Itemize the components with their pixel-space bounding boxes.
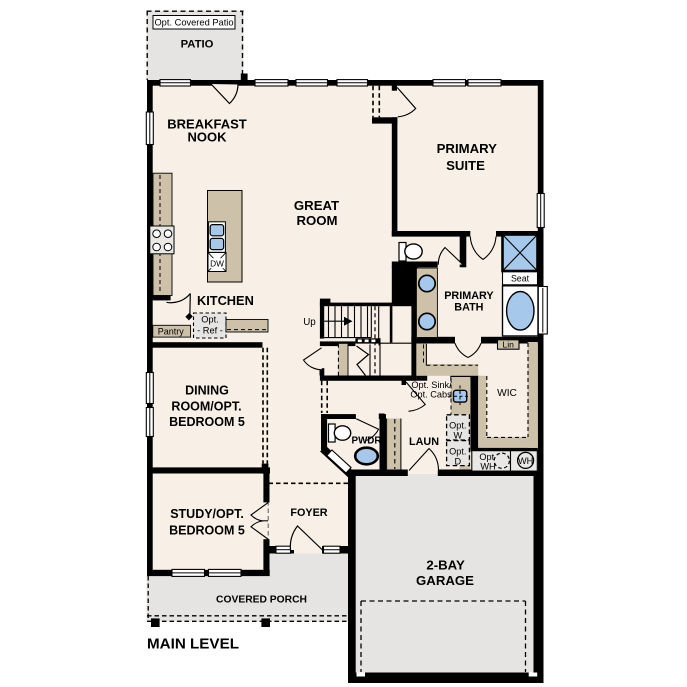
svg-text:Up: Up [303,317,316,328]
svg-text:GREAT: GREAT [294,198,339,213]
svg-text:Seat: Seat [511,274,530,284]
svg-text:Opt.: Opt. [201,315,219,325]
svg-text:STUDY/OPT.: STUDY/OPT. [170,507,244,521]
svg-text:D: D [454,456,461,466]
svg-text:Opt.: Opt. [449,446,466,456]
svg-text:ROOM: ROOM [296,213,337,228]
svg-text:2-BAY: 2-BAY [426,557,465,572]
svg-text:MAIN LEVEL: MAIN LEVEL [147,636,239,653]
svg-text:PATIO: PATIO [181,38,214,50]
svg-text:LAUN: LAUN [409,436,439,448]
svg-text:Opt.: Opt. [449,421,466,431]
svg-text:WH: WH [480,461,495,471]
svg-text:DW: DW [210,258,224,268]
svg-text:WIC: WIC [497,388,517,399]
svg-text:Pantry: Pantry [158,326,185,336]
svg-text:W: W [453,431,462,441]
svg-text:KITCHEN: KITCHEN [197,293,254,308]
svg-text:PWDR: PWDR [352,435,382,446]
svg-text:WH: WH [518,456,533,466]
svg-text:ROOM/OPT.: ROOM/OPT. [171,399,241,413]
svg-text:COVERED PORCH: COVERED PORCH [216,594,307,605]
svg-text:Opt. Covered Patio: Opt. Covered Patio [154,18,233,28]
svg-text:GARAGE: GARAGE [416,573,474,588]
svg-text:Opt. Sink/: Opt. Sink/ [411,380,452,390]
svg-text:Lin: Lin [502,340,514,350]
svg-text:BATH: BATH [454,301,483,313]
svg-text:BEDROOM 5: BEDROOM 5 [169,415,245,429]
svg-text:Opt. Cabs: Opt. Cabs [410,390,452,400]
svg-text:PRIMARY: PRIMARY [437,141,498,156]
svg-text:BEDROOM 5: BEDROOM 5 [169,524,245,538]
svg-text:SUITE: SUITE [446,158,485,173]
svg-text:FOYER: FOYER [290,507,327,519]
svg-text:DINING: DINING [185,384,229,398]
svg-text:NOOK: NOOK [188,130,228,145]
svg-text:- Ref -: - Ref - [197,326,223,336]
